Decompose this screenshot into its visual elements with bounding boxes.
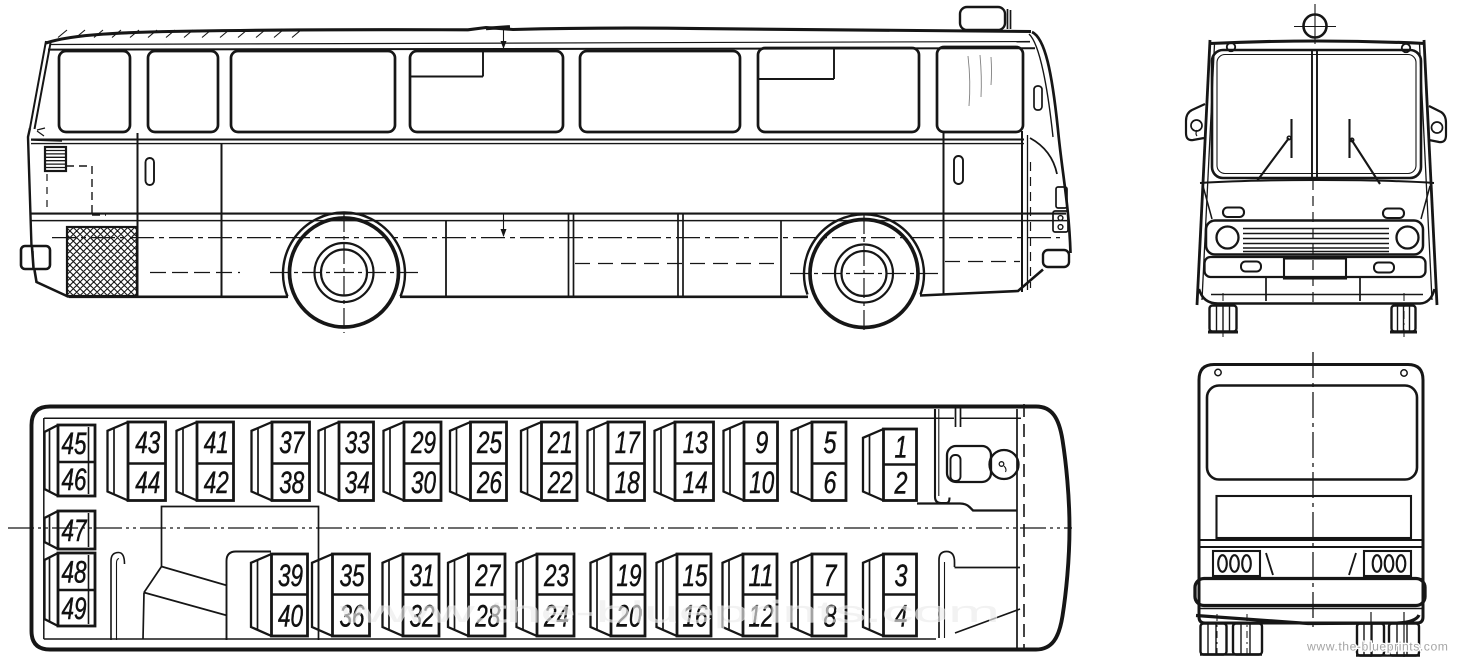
svg-text:37: 37 <box>279 425 305 460</box>
svg-text:41: 41 <box>204 425 229 460</box>
svg-text:17: 17 <box>615 425 641 460</box>
svg-text:19: 19 <box>617 558 642 593</box>
svg-text:33: 33 <box>345 425 370 460</box>
svg-text:48: 48 <box>62 555 88 590</box>
svg-text:46: 46 <box>62 462 88 497</box>
svg-text:45: 45 <box>62 426 88 461</box>
svg-text:13: 13 <box>683 425 708 460</box>
svg-text:www.the-blueprints.com: www.the-blueprints.com <box>338 596 1000 629</box>
svg-text:25: 25 <box>476 425 502 460</box>
svg-text:49: 49 <box>62 591 87 626</box>
svg-text:35: 35 <box>340 558 366 593</box>
svg-text:14: 14 <box>683 465 708 500</box>
svg-text:40: 40 <box>278 599 303 634</box>
svg-text:www.the-blueprints.com: www.the-blueprints.com <box>1306 640 1448 654</box>
svg-text:7: 7 <box>824 558 838 593</box>
svg-text:6: 6 <box>824 465 838 500</box>
svg-text:44: 44 <box>135 465 160 500</box>
svg-text:29: 29 <box>410 425 436 460</box>
svg-text:39: 39 <box>278 558 303 593</box>
svg-text:2: 2 <box>894 466 908 501</box>
svg-text:18: 18 <box>615 465 641 500</box>
svg-text:1: 1 <box>895 430 908 465</box>
svg-text:26: 26 <box>476 465 502 500</box>
svg-text:43: 43 <box>135 425 160 460</box>
svg-text:30: 30 <box>411 465 436 500</box>
svg-text:5: 5 <box>824 425 838 460</box>
svg-text:15: 15 <box>683 558 709 593</box>
svg-text:47: 47 <box>62 513 88 548</box>
svg-text:3: 3 <box>895 558 908 593</box>
svg-text:42: 42 <box>204 465 229 500</box>
svg-text:22: 22 <box>547 465 573 500</box>
svg-text:23: 23 <box>543 558 569 593</box>
svg-text:34: 34 <box>345 465 370 500</box>
svg-text:11: 11 <box>749 558 774 593</box>
svg-text:10: 10 <box>749 465 774 500</box>
svg-text:9: 9 <box>755 425 768 460</box>
svg-text:38: 38 <box>279 465 305 500</box>
svg-text:31: 31 <box>410 558 435 593</box>
svg-text:21: 21 <box>547 425 573 460</box>
svg-text:27: 27 <box>475 558 502 593</box>
